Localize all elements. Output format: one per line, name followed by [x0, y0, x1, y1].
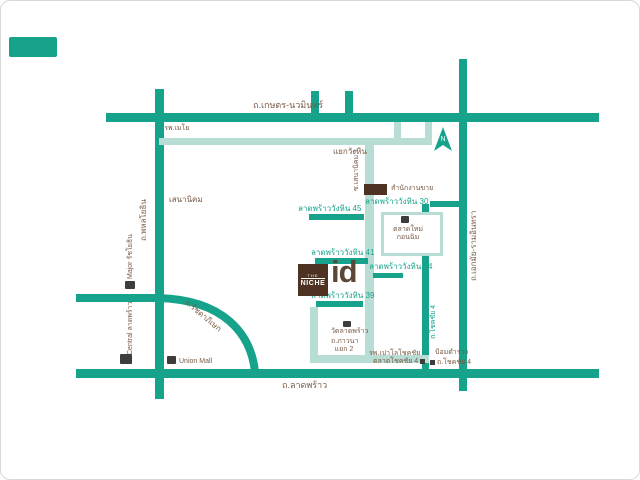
union-mall-icon: [167, 356, 176, 364]
phawana-line1: ถ.ภาวนา: [331, 338, 357, 346]
road-ladprao: [76, 369, 599, 378]
temple-icon: [343, 321, 351, 327]
landmark-wat-ladprao: วัดลาดพร้าว: [331, 328, 368, 336]
road-ratchadaphisek-curve: [1, 1, 640, 480]
road-ratchayothin-link: [76, 294, 156, 302]
niche-logo-id: id: [331, 255, 357, 289]
light-road-connector-2: [425, 122, 432, 138]
sales-office-marker: [364, 184, 387, 195]
soi-road-24: [373, 273, 403, 278]
road-label-ladprao: ถ.ลาดพร้าว: [282, 381, 327, 390]
building-icon: [420, 359, 425, 364]
landmark-central-ladprao: Central ลาดพร้าว: [127, 311, 135, 355]
chokchai4-road-note-label: ถ.โชคชัย 4: [437, 359, 471, 366]
road-label-ratchadaphisek: ถ.รัชดาภิเษก: [183, 298, 223, 334]
landmark-mayo-hospital: + รพ.เมโย: [157, 123, 189, 133]
soi-label-45: ลาดพร้าววังหิน 45: [298, 204, 361, 213]
map-canvas: ถ.เกษตร-นวมินทร์ ถ.พหลโยธิน ถ.เอกมัย-ราม…: [0, 0, 640, 480]
soi-label-24: ลาดพร้าววังหิน 24: [369, 262, 432, 271]
landmark-phawana: ถ.ภาวนา แยก 2: [331, 338, 357, 354]
soi-road-39: [316, 301, 363, 307]
sales-office-label: สำนักงานขาย: [391, 185, 433, 193]
compass-n-label: N: [440, 136, 445, 143]
building-icon: [430, 360, 435, 365]
landmark-major-ratchayothin: Major รัชโยธิน: [127, 239, 135, 279]
niche-logo-name: NICHE: [301, 278, 326, 287]
road-ekamai-ramintra: [459, 59, 467, 391]
landmark-police-box: ป้อมตำรวจ: [435, 349, 469, 357]
new-market-line2: กอนฉิม: [383, 234, 433, 242]
landmark-paolo-hospital: รพ.เปาโลโชคชัย +: [369, 348, 427, 358]
soi-road-45: [309, 214, 364, 220]
cinema-icon: [125, 281, 135, 289]
landmark-chokchai4-market: ตลาดโชคชัย 4: [373, 358, 425, 366]
hospital-cross-icon: +: [157, 122, 162, 132]
light-road-connector-1: [394, 122, 401, 138]
brand-block: [9, 37, 57, 57]
light-road-sena-nikhom1: [159, 138, 432, 145]
junction-label-sena-nikhom: เสนานิคม: [169, 195, 203, 204]
phawana-line2: แยก 2: [331, 346, 357, 354]
landmark-new-market: ตลาดใหม่ กอนฉิม: [383, 226, 433, 242]
market-icon: [401, 216, 409, 223]
hospital-cross-icon: +: [422, 347, 427, 357]
road-label-phahonyothin: ถ.พหลโยธิน: [139, 191, 148, 241]
junction-label-wanghin: แยกวังหิน: [333, 147, 367, 156]
chokchai4-market-label: ตลาดโชคชัย 4: [373, 358, 418, 365]
road-phahonyothin: [155, 89, 164, 399]
road-label-sena-nikhom1: ซ.เสนานิคม 1: [353, 151, 361, 191]
landmark-chokchai4-road-note: ถ.โชคชัย 4: [430, 359, 471, 367]
landmark-union-mall: Union Mall: [179, 358, 212, 366]
road-label-kaset-nawamin: ถ.เกษตร-นวมินทร์: [253, 101, 323, 110]
soi-road-30: [430, 201, 459, 207]
road-label-ekamai-ramintra: ถ.เอกมัย-รามอินทรา: [469, 209, 478, 281]
paolo-hospital-label: รพ.เปาโลโชคชัย: [369, 350, 420, 357]
road-kaset-nawamin: [106, 113, 599, 122]
mayo-hospital-label: รพ.เมโย: [164, 125, 189, 132]
niche-logo: THE NICHE: [298, 264, 328, 296]
road-label-chokchai4: ถ.โชคชัย 4: [429, 299, 438, 339]
road-stub-north-2: [345, 91, 353, 114]
compass-icon: N: [433, 127, 453, 151]
mall-icon: [120, 354, 132, 364]
soi-label-30: ลาดพร้าววังหิน 30: [365, 197, 428, 206]
new-market-line1: ตลาดใหม่: [383, 226, 433, 234]
